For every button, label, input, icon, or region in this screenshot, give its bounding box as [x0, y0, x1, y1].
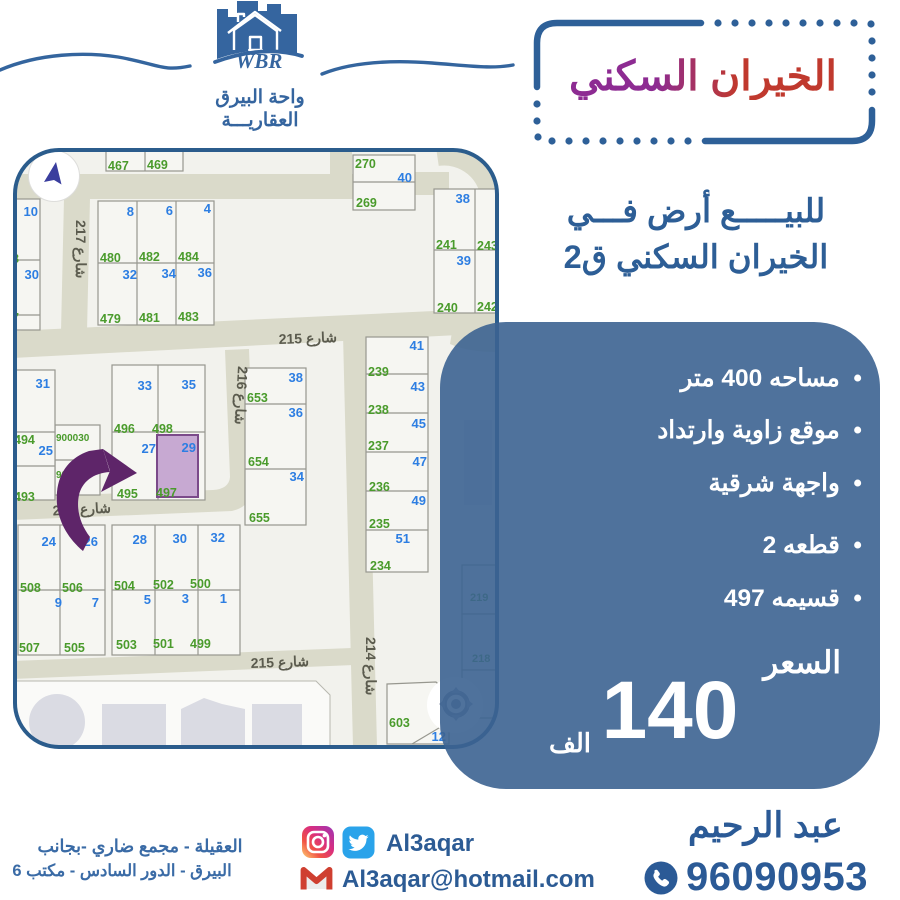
svg-text:467: 467 [108, 159, 129, 173]
svg-text:45: 45 [412, 416, 426, 431]
svg-text:506: 506 [62, 581, 83, 595]
svg-text:236: 236 [369, 480, 390, 494]
svg-text:41: 41 [410, 338, 424, 353]
svg-text:502: 502 [153, 578, 174, 592]
svg-text:603: 603 [389, 716, 410, 730]
svg-text:237: 237 [368, 439, 389, 453]
svg-text:شارع 215: شارع 215 [250, 653, 309, 672]
svg-text:484: 484 [178, 250, 199, 264]
svg-text:7: 7 [92, 595, 99, 610]
svg-text:35: 35 [182, 377, 196, 392]
svg-text:47: 47 [413, 454, 427, 469]
svg-text:235: 235 [369, 517, 390, 531]
svg-text:36: 36 [289, 405, 303, 420]
svg-text:32: 32 [211, 530, 225, 545]
svg-text:483: 483 [178, 310, 199, 324]
svg-text:31: 31 [36, 376, 50, 391]
svg-text:27: 27 [142, 441, 156, 456]
svg-text:495: 495 [117, 487, 138, 501]
svg-text:36: 36 [198, 265, 212, 280]
svg-text:242: 242 [477, 300, 498, 314]
svg-text:498: 498 [152, 422, 173, 436]
svg-text:شارع 215: شارع 215 [278, 329, 337, 348]
svg-text:25: 25 [39, 443, 53, 458]
svg-text:9: 9 [55, 595, 62, 610]
svg-text:6: 6 [166, 203, 173, 218]
svg-text:239: 239 [368, 365, 389, 379]
svg-text:480: 480 [100, 251, 121, 265]
svg-text:508: 508 [20, 581, 41, 595]
svg-text:39: 39 [457, 253, 471, 268]
svg-text:4: 4 [204, 201, 212, 216]
svg-text:34: 34 [162, 266, 177, 281]
svg-text:34: 34 [290, 469, 305, 484]
svg-text:10: 10 [24, 204, 38, 219]
svg-text:29: 29 [182, 440, 196, 455]
svg-text:240: 240 [437, 301, 458, 315]
svg-text:33: 33 [138, 378, 152, 393]
svg-text:38: 38 [289, 370, 303, 385]
svg-text:482: 482 [139, 250, 160, 264]
svg-text:469: 469 [147, 158, 168, 172]
svg-text:655: 655 [249, 511, 270, 525]
svg-text:497: 497 [156, 486, 177, 500]
svg-text:494: 494 [14, 433, 35, 447]
svg-text:270: 270 [355, 157, 376, 171]
svg-text:500: 500 [190, 577, 211, 591]
svg-text:481: 481 [139, 311, 160, 325]
svg-text:241: 241 [436, 238, 457, 252]
svg-text:30: 30 [25, 267, 39, 282]
svg-text:493: 493 [14, 490, 35, 504]
svg-text:49: 49 [412, 493, 426, 508]
svg-text:269: 269 [356, 196, 377, 210]
svg-text:شارع 214: شارع 214 [362, 637, 379, 695]
svg-text:1: 1 [220, 591, 227, 606]
svg-text:3: 3 [182, 591, 189, 606]
svg-text:32: 32 [123, 267, 137, 282]
svg-text:504: 504 [114, 579, 135, 593]
svg-text:38: 38 [456, 191, 470, 206]
svg-text:479: 479 [100, 312, 121, 326]
svg-text:501: 501 [153, 637, 174, 651]
svg-text:507: 507 [19, 641, 40, 655]
svg-text:654: 654 [248, 455, 269, 469]
svg-text:238: 238 [368, 403, 389, 417]
svg-text:5: 5 [144, 592, 151, 607]
svg-text:499: 499 [190, 637, 211, 651]
svg-text:234: 234 [370, 559, 391, 573]
svg-text:شارع 217: شارع 217 [72, 220, 89, 278]
svg-text:51: 51 [396, 531, 410, 546]
svg-text:505: 505 [64, 641, 85, 655]
svg-text:900030: 900030 [56, 433, 90, 444]
svg-text:503: 503 [116, 638, 137, 652]
svg-text:43: 43 [411, 379, 425, 394]
svg-text:28: 28 [133, 532, 147, 547]
svg-text:8: 8 [127, 204, 134, 219]
svg-text:24: 24 [42, 534, 57, 549]
svg-text:30: 30 [173, 531, 187, 546]
svg-text:40: 40 [398, 170, 412, 185]
svg-text:243: 243 [477, 239, 498, 253]
svg-text:496: 496 [114, 422, 135, 436]
